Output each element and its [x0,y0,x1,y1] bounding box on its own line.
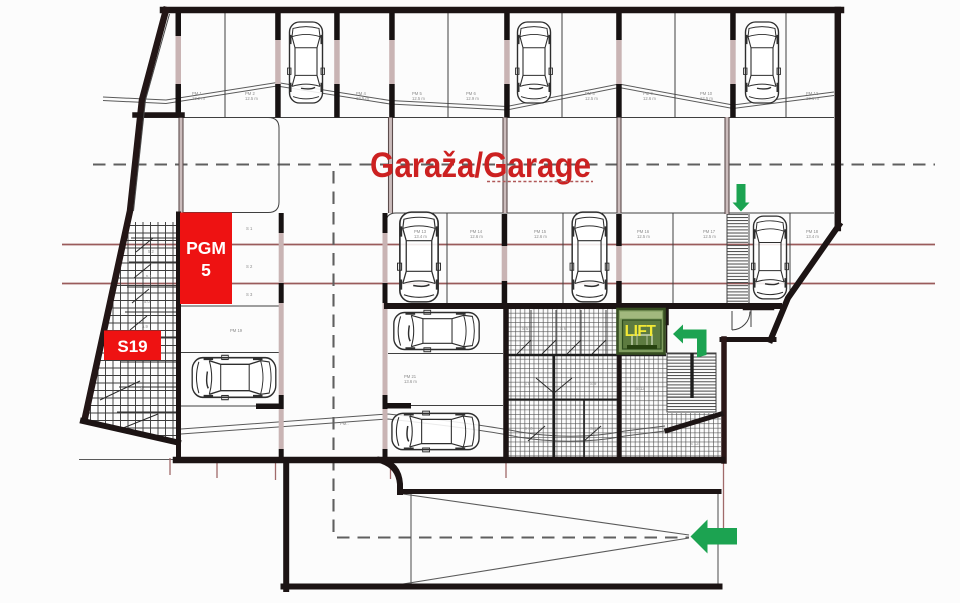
svg-text:S 6: S 6 [560,326,567,331]
svg-text:S 1: S 1 [246,226,253,231]
svg-text:S 2: S 2 [246,264,253,269]
svg-text:5.1: 5.1 [146,274,152,279]
svg-text:S 10: S 10 [524,426,533,431]
svg-text:13.4 m: 13.4 m [414,234,427,239]
svg-text:PM 19: PM 19 [230,328,243,333]
svg-text:13.2 m: 13.2 m [192,96,205,101]
svg-text:4.9: 4.9 [142,324,148,329]
svg-text:5: 5 [201,260,211,280]
svg-text:5.0: 5.0 [144,299,150,304]
svg-text:S 8: S 8 [524,381,531,386]
svg-text:S 13: S 13 [690,441,699,446]
svg-text:12.6 m: 12.6 m [534,234,547,239]
svg-text:12.5 m: 12.5 m [637,234,650,239]
svg-text:PGM: PGM [186,238,226,258]
svg-text:12.5 m: 12.5 m [356,96,369,101]
svg-text:12.5 m: 12.5 m [700,96,713,101]
svg-text:12.6 m: 12.6 m [643,96,656,101]
svg-text:S..: S.. [140,386,145,391]
svg-text:5.2: 5.2 [148,249,154,254]
svg-text:12.5 m: 12.5 m [412,96,425,101]
svg-text:12.6 m: 12.6 m [470,234,483,239]
svg-text:S 11: S 11 [590,426,599,431]
svg-text:13.4 m: 13.4 m [806,234,819,239]
svg-text:12.5 m: 12.5 m [585,96,598,101]
svg-text:S 9: S 9 [590,381,597,386]
svg-text:S19: S19 [117,337,147,356]
svg-text:Garaža/Garage: Garaža/Garage [370,146,591,185]
svg-text:13.1 m: 13.1 m [806,96,819,101]
svg-text:S 3: S 3 [246,292,253,297]
svg-text:12.5 m: 12.5 m [245,96,258,101]
svg-text:S 5: S 5 [522,326,529,331]
svg-text:12.9 m: 12.9 m [466,96,479,101]
svg-text:13.6 m: 13.6 m [404,379,417,384]
svg-text:PM..: PM.. [340,421,349,426]
svg-text:12.5 m: 12.5 m [703,234,716,239]
svg-text:S 12: S 12 [636,386,645,391]
svg-text:LIFT: LIFT [625,323,657,340]
